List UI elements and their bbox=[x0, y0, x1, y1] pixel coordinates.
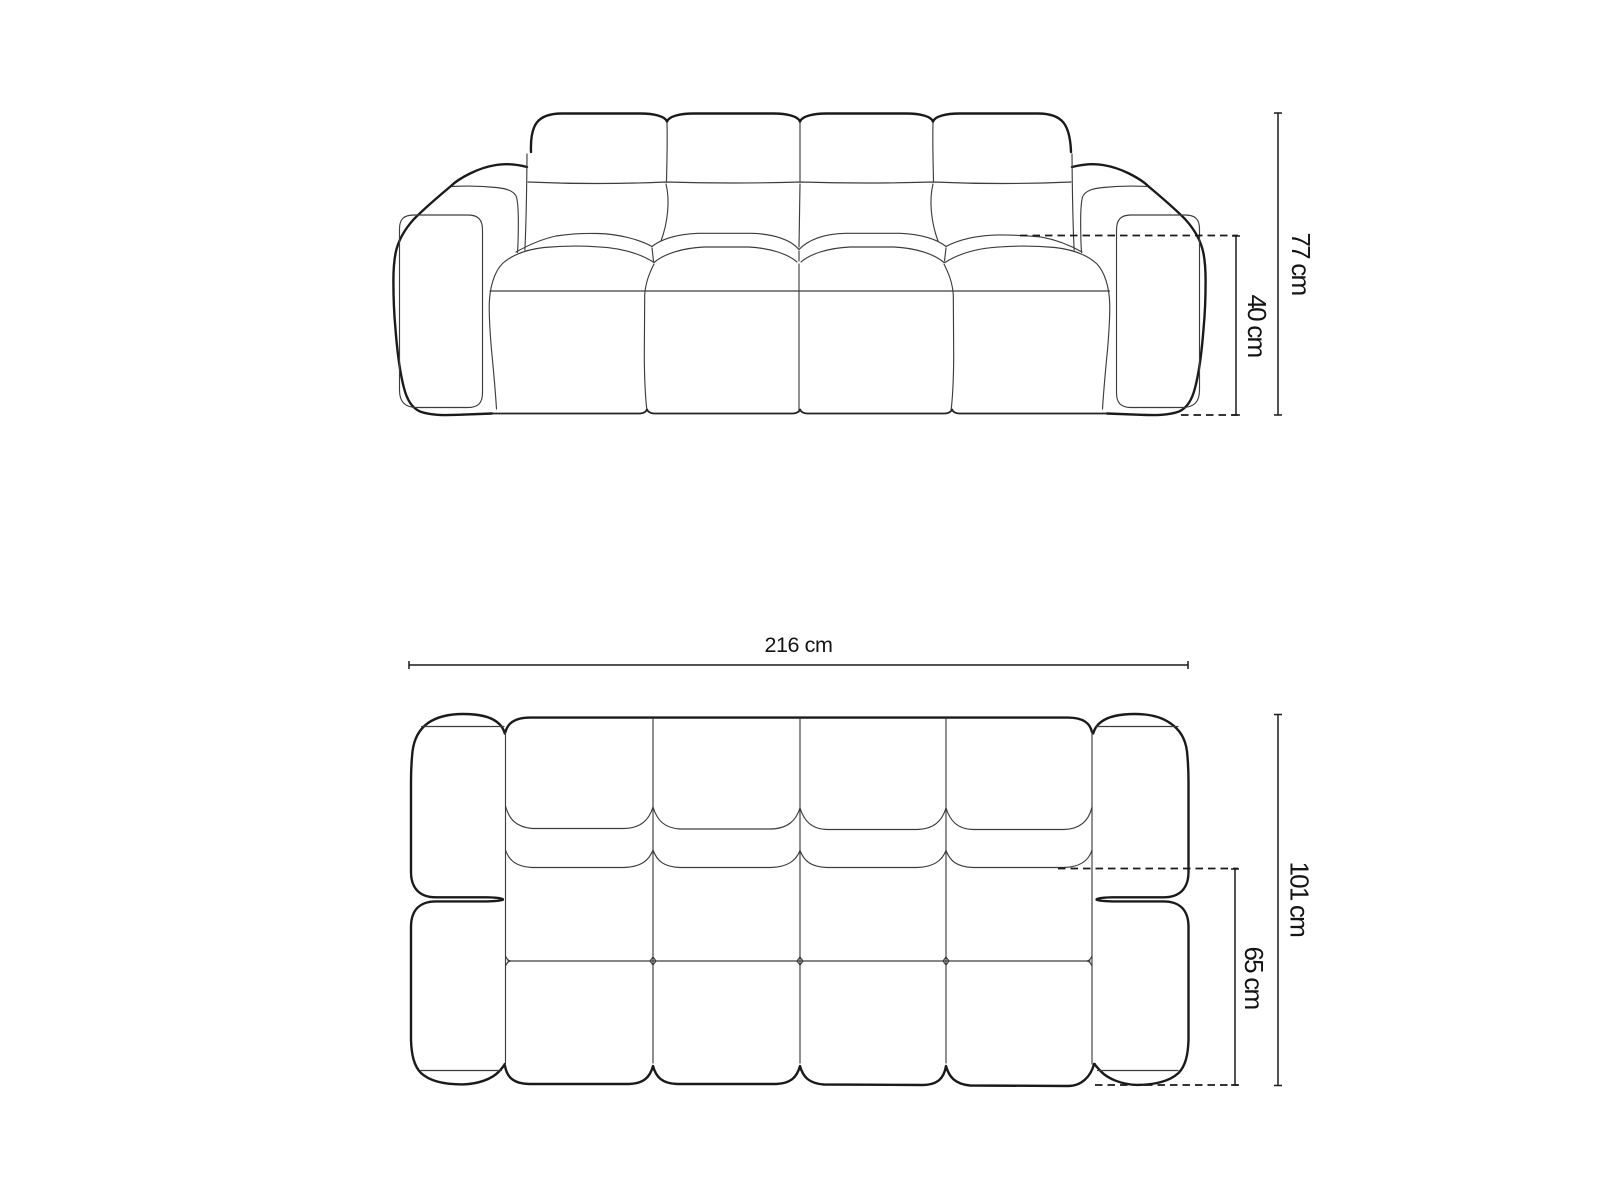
svg-text:216 cm: 216 cm bbox=[764, 633, 832, 657]
svg-text:65 cm: 65 cm bbox=[1239, 947, 1269, 1009]
svg-text:40 cm: 40 cm bbox=[1242, 295, 1272, 357]
svg-text:101 cm: 101 cm bbox=[1285, 862, 1315, 937]
svg-text:77 cm: 77 cm bbox=[1286, 233, 1316, 295]
